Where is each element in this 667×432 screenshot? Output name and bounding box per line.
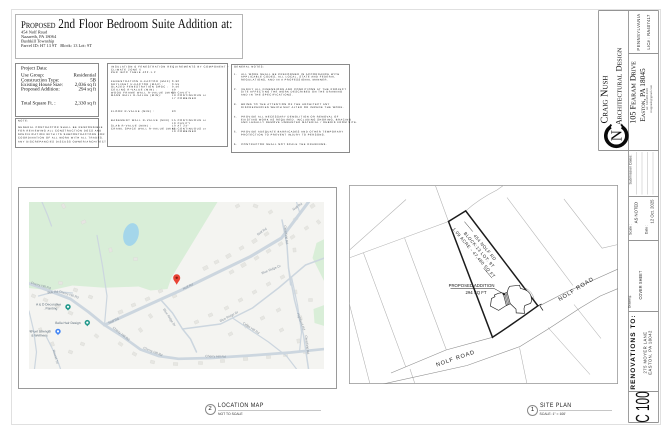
svg-text:& Wellness: & Wellness	[31, 334, 48, 338]
svg-text:NOLF ROAD: NOLF ROAD	[435, 349, 475, 368]
svg-text:N: N	[609, 130, 626, 141]
svg-text:. Painting: . Painting	[43, 307, 57, 311]
svg-text:Cherry Hill Rd: Cherry Hill Rd	[205, 354, 226, 359]
svg-text:PROPOSED ADDITION: PROPOSED ADDITION	[449, 282, 495, 287]
svg-text:Bella Hair Design: Bella Hair Design	[55, 321, 81, 325]
svg-text:294 SQ FT: 294 SQ FT	[465, 290, 486, 295]
